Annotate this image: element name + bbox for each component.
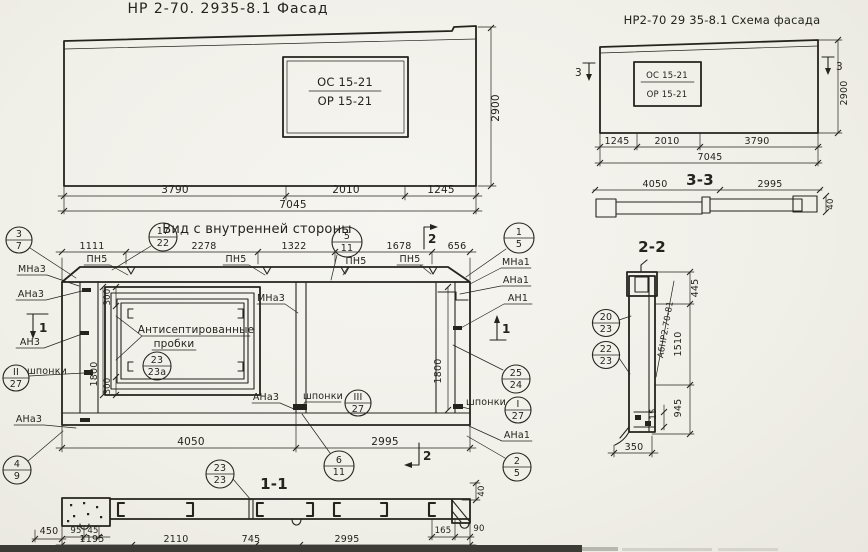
section-3-3: 3-3 4050 2995 40 <box>592 171 836 217</box>
facade-dim-3790: 3790 <box>161 184 189 196</box>
schema-dim-2010: 2010 <box>655 136 680 147</box>
inner-note-line1: Антисептированные <box>138 324 255 336</box>
smudge-strip <box>0 545 582 552</box>
callout-5-11: 5 11 <box>332 227 362 257</box>
callout-I-27: I 27 <box>505 397 531 423</box>
blueprint-sheet: НР 2-70. 2935-8.1 Фасад ОС 15-21 ОР 15-2… <box>0 0 868 552</box>
inner-label-shponki-left: шпонки <box>27 366 67 377</box>
callout-3-7: 3 7 <box>6 227 32 253</box>
s22-post-outline <box>627 272 657 432</box>
s11-dim-90: 90 <box>473 524 484 534</box>
inner-dim-2995: 2995 <box>371 436 399 448</box>
inner-label-mna1: МНа1 <box>502 257 530 268</box>
inner-label-ana1-bottom: АНа1 <box>504 430 530 441</box>
schema-panel-outline <box>600 40 818 133</box>
callout-bottom: 23а <box>148 367 167 378</box>
callout-4-9: 4 9 <box>3 456 31 484</box>
callout-top: 2 <box>514 456 520 467</box>
s11-dim-450: 450 <box>40 526 59 537</box>
callout-bottom: 5 <box>514 468 520 479</box>
callout-bottom: 23 <box>600 324 613 335</box>
callout-23-23: 23 23 <box>206 460 234 488</box>
callout-bottom: 23 <box>214 475 227 486</box>
inner-label-an1: АН1 <box>508 293 528 304</box>
callout-25-24: 25 24 <box>502 365 530 393</box>
schema-mark-3-right: 3 <box>836 61 843 73</box>
inner-mark-1-left: 1 <box>39 321 48 335</box>
blueprint-canvas: НР 2-70. 2935-8.1 Фасад ОС 15-21 ОР 15-2… <box>0 0 868 552</box>
inner-pn5-label-1: ПН5 <box>87 254 108 265</box>
callout-20-23: 20 23 <box>592 310 620 337</box>
s33-profile <box>596 196 817 217</box>
s11-dim-165: 165 <box>435 526 452 536</box>
facade-window-mark-top: ОС 15-21 <box>317 75 373 89</box>
schema-title: НР2-70 29 35-8.1 Схема фасада <box>624 13 821 27</box>
callout-top: 17 <box>157 226 170 237</box>
schema-section-arrowheads <box>586 68 831 81</box>
s33-dim-2995: 2995 <box>758 179 783 190</box>
callout-bottom: 23 <box>600 356 613 367</box>
callout-bottom: 11 <box>341 243 354 254</box>
inner-dim-1800-right: 1800 <box>433 359 444 384</box>
inner-dim-2278: 2278 <box>192 241 217 252</box>
schema-dim-1245: 1245 <box>605 136 630 147</box>
inner-note-line2: пробки <box>154 338 195 350</box>
section-3-3-label: 3-3 <box>686 171 714 189</box>
section-2-2: 2-2 445 1510 945 15 350 АбНР2.70-81 20 2… <box>592 238 701 457</box>
s22-dim-1510: 1510 <box>673 332 684 357</box>
schema-dim-2900: 2900 <box>839 81 850 106</box>
schema-dim-7045: 7045 <box>698 152 723 163</box>
callout-top: 3 <box>16 229 22 240</box>
inner-title: Вид с внутренней стороны <box>162 222 351 237</box>
section-2-2-label: 2-2 <box>638 238 666 256</box>
facade-dim-2010: 2010 <box>332 184 360 196</box>
callout-bottom: 9 <box>14 471 20 482</box>
smudge-fragment <box>718 548 778 551</box>
schema-view: НР2-70 29 35-8.1 Схема фасада ОС 15-21 О… <box>575 13 850 166</box>
inner-label-shponki-mid: шпонки <box>303 391 343 402</box>
inner-label-mna3-left: МНа3 <box>18 264 46 275</box>
s11-callout-leader <box>233 479 251 500</box>
schema-panel-lines <box>600 46 818 82</box>
facade-dim-1245: 1245 <box>427 184 455 196</box>
callout-22-23: 22 23 <box>592 342 620 369</box>
inner-label-ana3-mid: АНа3 <box>253 392 279 403</box>
s11-dim-2110: 2110 <box>164 534 189 545</box>
facade-panel-outline <box>64 26 476 186</box>
callout-top: 5 <box>344 231 350 242</box>
inner-internal-dim-lines <box>56 287 476 452</box>
callout-17-22: 17 22 <box>149 223 177 251</box>
callout-bottom: 24 <box>510 380 523 391</box>
inner-mark-2-top: 2 <box>428 232 437 246</box>
callout-bottom: 7 <box>16 241 22 252</box>
inner-dim-1322: 1322 <box>282 241 307 252</box>
schema-section-marks <box>583 57 834 79</box>
cropped-bottom-band <box>0 545 778 552</box>
s11-profile-details <box>80 499 470 529</box>
callout-top: III <box>353 392 362 403</box>
facade-window-mark-bottom: ОР 15-21 <box>318 94 373 108</box>
callout-bottom: 27 <box>352 404 365 415</box>
s22-dim-350: 350 <box>625 442 644 453</box>
inner-dim-1111: 1111 <box>80 241 105 252</box>
facade-view: НР 2-70. 2935-8.1 Фасад ОС 15-21 ОР 15-2… <box>58 1 502 214</box>
schema-window-mark-bottom: ОР 15-21 <box>647 90 688 100</box>
inner-view: Вид с внутренней стороны 1111 2278 1322 … <box>3 222 534 484</box>
s33-dim-4050: 4050 <box>643 179 668 190</box>
inner-dim-300-top: 300 <box>103 289 113 306</box>
s11-dim-745: 745 <box>242 534 261 545</box>
facade-panel-lines <box>64 39 476 133</box>
inner-mark-2-bottom: 2 <box>423 449 432 463</box>
callout-top: 20 <box>600 312 613 323</box>
callout-bottom: 27 <box>512 411 525 422</box>
inner-pn5-label-2: ПН5 <box>226 254 247 265</box>
inner-pn5-label-4: ПН5 <box>400 254 421 265</box>
callout-III-27: III 27 <box>345 390 371 416</box>
callout-1-5: 1 5 <box>504 223 534 253</box>
inner-label-ana3-left-bottom: АНа3 <box>16 414 42 425</box>
facade-dim-7045: 7045 <box>279 199 307 211</box>
callout-top: II <box>13 367 19 378</box>
s22-dim-945: 945 <box>673 399 684 418</box>
inner-dim-4050: 4050 <box>177 436 205 448</box>
inner-label-an3-left: АН3 <box>20 337 40 348</box>
callout-2-5: 2 5 <box>503 453 531 481</box>
inner-dim-656: 656 <box>448 241 467 252</box>
inner-mark-1-right: 1 <box>502 322 511 336</box>
callout-top: 4 <box>14 459 20 470</box>
callout-bottom: 27 <box>10 379 23 390</box>
inner-label-shponki-right: шпонки <box>466 397 506 408</box>
facade-dim-2900: 2900 <box>490 94 502 122</box>
inner-dim-300-bottom: 300 <box>103 378 113 395</box>
inner-label-ana3-left: АНа3 <box>18 289 44 300</box>
schema-window-mark-top: ОС 15-21 <box>646 71 688 81</box>
schema-mark-3-left: 3 <box>575 67 582 79</box>
s22-dim-445: 445 <box>690 279 701 298</box>
schema-dim-3790: 3790 <box>745 136 770 147</box>
smudge-fragment <box>622 548 712 551</box>
s22-dim-15: 15 <box>649 408 659 419</box>
section-1-1: 1-1 23 23 450 95 45 1195 2110 745 2995 1… <box>32 460 487 549</box>
callout-6-11: 6 11 <box>324 451 354 481</box>
inner-label-mna3-mid: МНа3 <box>257 293 285 304</box>
callout-top: 6 <box>336 455 342 466</box>
callout-top: 22 <box>600 344 613 355</box>
s22-dim-lines <box>608 272 694 457</box>
callout-23-23a: 23 23а <box>143 352 171 380</box>
s11-dim-40: 40 <box>477 485 487 496</box>
callout-bottom: 11 <box>333 467 346 478</box>
s11-concrete-dots <box>67 502 102 522</box>
callout-top: I <box>516 399 519 410</box>
facade-title: НР 2-70. 2935-8.1 Фасад <box>127 1 328 17</box>
s11-dim-2995: 2995 <box>335 534 360 545</box>
callout-top: 1 <box>516 227 522 238</box>
section-1-1-label: 1-1 <box>260 475 288 493</box>
callout-bottom: 22 <box>157 238 170 249</box>
schema-dim-lines <box>595 40 842 166</box>
s11-dim-1195: 1195 <box>80 534 105 545</box>
callout-top: 23 <box>214 463 227 474</box>
smudge-fragment <box>582 547 618 551</box>
inner-dim-1678: 1678 <box>387 241 412 252</box>
callout-top: 23 <box>151 355 164 366</box>
s11-channel-marks <box>118 503 435 516</box>
callout-top: 25 <box>510 368 523 379</box>
callout-II-27: II 27 <box>3 365 29 391</box>
s33-dim-40: 40 <box>826 198 836 209</box>
inner-label-ana1: АНа1 <box>503 275 529 286</box>
callout-bottom: 5 <box>516 239 522 250</box>
inner-p5-label-3: ПН5 <box>346 256 367 267</box>
s22-dim-ticks <box>611 269 693 456</box>
